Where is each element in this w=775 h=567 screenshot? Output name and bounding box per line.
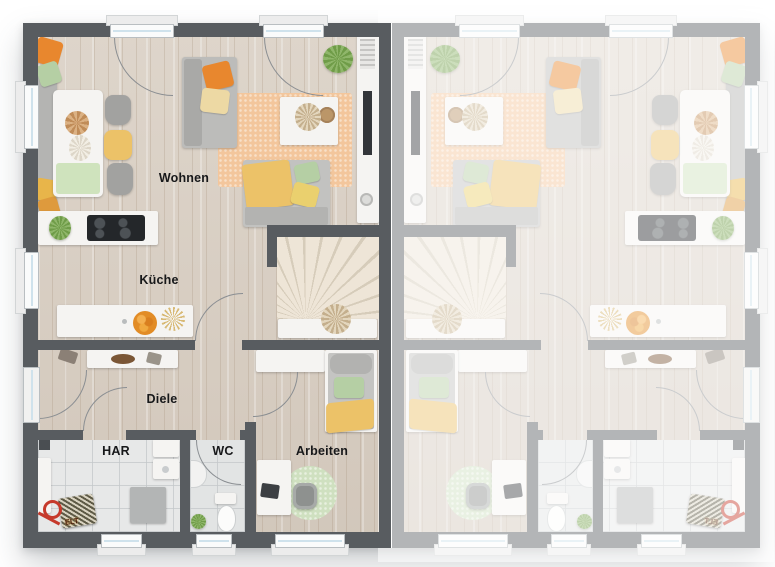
shelf-books — [408, 39, 423, 69]
wall-living-stairs — [267, 225, 379, 237]
desk-chair — [466, 483, 490, 509]
toilet-bowl — [217, 505, 236, 532]
entry-door — [23, 367, 40, 423]
table-bench-cushion — [56, 163, 100, 194]
kitchen-plant — [712, 216, 734, 240]
speaker — [360, 193, 373, 206]
office-window — [275, 534, 345, 548]
desk-chair — [293, 483, 317, 509]
table-deco-flowers — [69, 135, 91, 161]
sofa-throw-yellow — [241, 159, 294, 211]
living-plant — [430, 45, 460, 73]
wall-kitchen-hall-right — [242, 340, 379, 350]
chair-gray-2 — [650, 163, 676, 195]
wall-wc-office — [527, 422, 538, 532]
office-wardrobe — [256, 350, 325, 372]
duplex-building: ELT — [23, 23, 760, 548]
kitchen-plant — [49, 216, 71, 240]
room-label: HAR — [102, 444, 130, 458]
wall-kitchen-hall-left — [38, 340, 195, 350]
wall-stair-stub — [506, 225, 516, 267]
fruit-bowl — [133, 311, 157, 335]
chair-gray-1 — [105, 95, 131, 125]
wall-wc-office — [245, 422, 256, 532]
toilet-bowl — [547, 505, 566, 532]
centerpiece-bowl — [694, 111, 718, 135]
speaker — [410, 193, 423, 206]
unit-right: ELT — [392, 23, 760, 548]
pillow-cream — [553, 87, 584, 114]
wall-hall-har-b — [587, 430, 657, 440]
har-dark-box — [39, 439, 50, 450]
room-label: Wohnen — [159, 171, 209, 185]
daybed-pillow — [411, 354, 453, 374]
cooktop — [87, 215, 145, 241]
table-bench-cushion — [683, 163, 727, 194]
har-storage-box — [617, 487, 653, 523]
kitchen-window — [744, 252, 759, 309]
living-plant — [323, 45, 353, 73]
daybed-pillow — [330, 354, 372, 374]
kitchen-window — [24, 252, 39, 309]
wall-living-stairs — [404, 225, 516, 237]
sofa-seat-edge — [245, 207, 328, 225]
sofa-vertical-backrest — [581, 59, 599, 146]
wall-party — [379, 23, 391, 548]
pillow-cream — [200, 87, 231, 114]
office-wardrobe — [458, 350, 527, 372]
har-window — [101, 534, 142, 548]
washer-door — [614, 466, 621, 473]
wall-party — [392, 23, 404, 548]
wall-exterior-top — [392, 23, 760, 37]
sofa-seat-edge — [455, 207, 538, 225]
dining-window — [24, 85, 39, 149]
wall-kitchen-hall-right — [404, 340, 541, 350]
wc-window — [551, 534, 587, 548]
terrace-door-window-1 — [609, 24, 673, 38]
terrace-door-window-2 — [263, 24, 324, 38]
har-dark-box — [733, 439, 744, 450]
chair-gray-1 — [652, 95, 678, 125]
tv — [411, 91, 420, 155]
wall-exterior-top — [23, 23, 391, 37]
floorplan-canvas: ELT — [0, 0, 775, 567]
chair-yellow — [651, 130, 679, 160]
wc-window — [196, 534, 232, 548]
table-tray — [319, 107, 335, 123]
room-label: Arbeiten — [296, 444, 348, 458]
wall-hall-har-b — [126, 430, 196, 440]
centerpiece-bowl — [65, 111, 89, 135]
faucet — [122, 319, 127, 324]
room-label: WC — [212, 444, 233, 458]
chair-gray-2 — [107, 163, 133, 195]
room-label: Küche — [139, 273, 178, 287]
wall-kitchen-hall-left — [588, 340, 745, 350]
table-deco-flowers — [692, 135, 714, 161]
toilet-tank — [215, 493, 236, 504]
washer-door — [162, 466, 169, 473]
cooktop — [638, 215, 696, 241]
elt-label: ELT — [704, 516, 719, 527]
wall-hall-har-a — [700, 430, 745, 440]
laptop — [260, 483, 280, 499]
daybed-pillow-green — [419, 377, 449, 398]
sofa-vertical-backrest — [184, 59, 202, 146]
wall-stair-stub — [267, 225, 277, 267]
fruit-bowl — [626, 311, 650, 335]
daybed-blanket — [326, 398, 374, 433]
red-cleaner-ring — [43, 500, 62, 519]
terrace-door-window-1 — [110, 24, 174, 38]
terrace-door-window-2 — [459, 24, 520, 38]
washer-upper — [604, 439, 630, 457]
wood-bowl — [648, 354, 672, 364]
faucet — [656, 319, 661, 324]
har-storage-box — [130, 487, 166, 523]
unit-left: ELT — [23, 23, 391, 548]
room-label: Diele — [147, 392, 178, 406]
sofa-throw-yellow — [488, 159, 541, 211]
entry-door — [743, 367, 760, 423]
washer-upper — [153, 439, 179, 457]
dried-plant — [321, 304, 351, 334]
dining-window — [744, 85, 759, 149]
chair-yellow — [104, 130, 132, 160]
elt-label: ELT — [64, 516, 79, 527]
wall-har-wc — [180, 440, 190, 532]
dried-plant — [432, 304, 462, 334]
laptop — [503, 483, 523, 499]
har-window — [641, 534, 682, 548]
daybed-blanket — [409, 398, 457, 433]
wall-har-wc — [593, 440, 603, 532]
table-plant — [462, 103, 488, 131]
toilet-tank — [547, 493, 568, 504]
table-plant — [295, 103, 321, 131]
red-cleaner-ring — [721, 500, 740, 519]
shelf-books — [360, 39, 375, 69]
daybed-pillow-green — [334, 377, 364, 398]
tv — [363, 91, 372, 155]
wc-plant — [577, 514, 592, 529]
counter-twigs — [161, 307, 185, 331]
wall-hall-har-a — [38, 430, 83, 440]
wc-plant — [191, 514, 206, 529]
office-window — [438, 534, 508, 548]
wood-bowl — [111, 354, 135, 364]
counter-twigs — [598, 307, 622, 331]
